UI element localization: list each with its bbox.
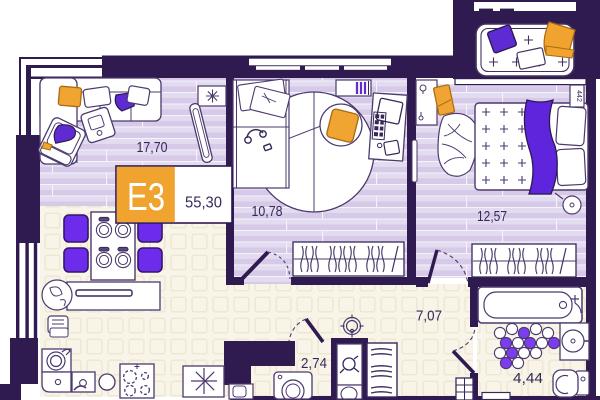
- svg-text:2,74: 2,74: [301, 355, 327, 372]
- svg-text:4,44: 4,44: [513, 370, 543, 387]
- svg-text:55,30: 55,30: [185, 195, 222, 212]
- svg-text:17,70: 17,70: [137, 139, 168, 156]
- svg-text:442: 442: [575, 90, 582, 102]
- svg-text:7,07: 7,07: [416, 308, 442, 325]
- svg-text:E3: E3: [127, 176, 165, 219]
- svg-text:10,78: 10,78: [252, 203, 283, 220]
- svg-text:12,57: 12,57: [477, 208, 507, 225]
